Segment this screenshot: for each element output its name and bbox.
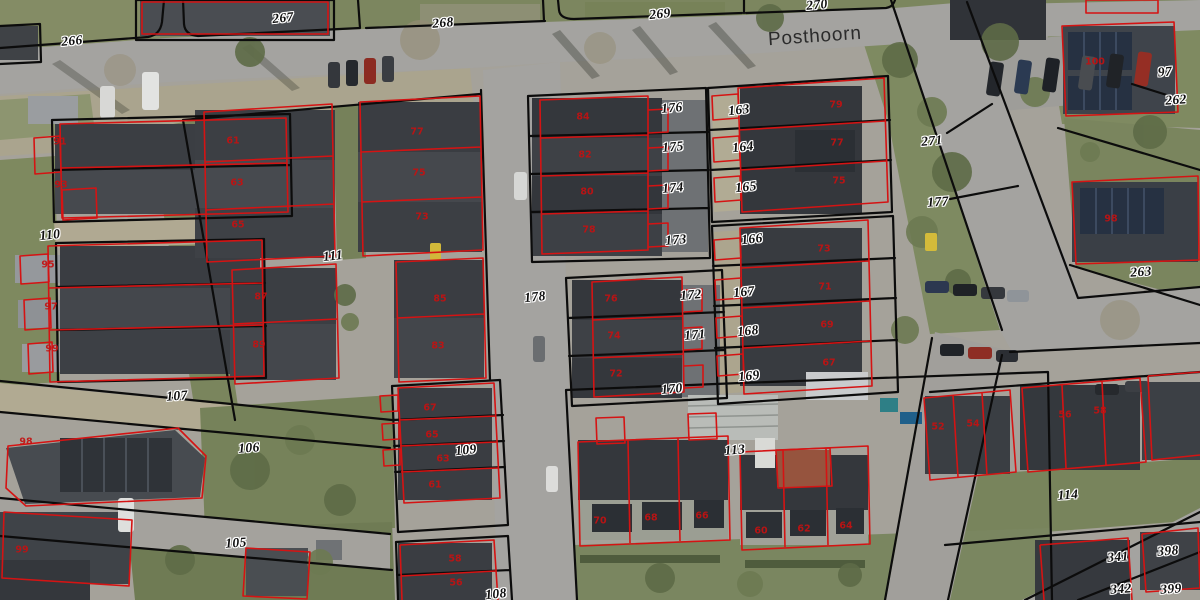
aerial-map-view[interactable]: 2662672682692702711771781101111071061051…: [0, 0, 1200, 600]
aerial-scene: [0, 0, 1200, 600]
